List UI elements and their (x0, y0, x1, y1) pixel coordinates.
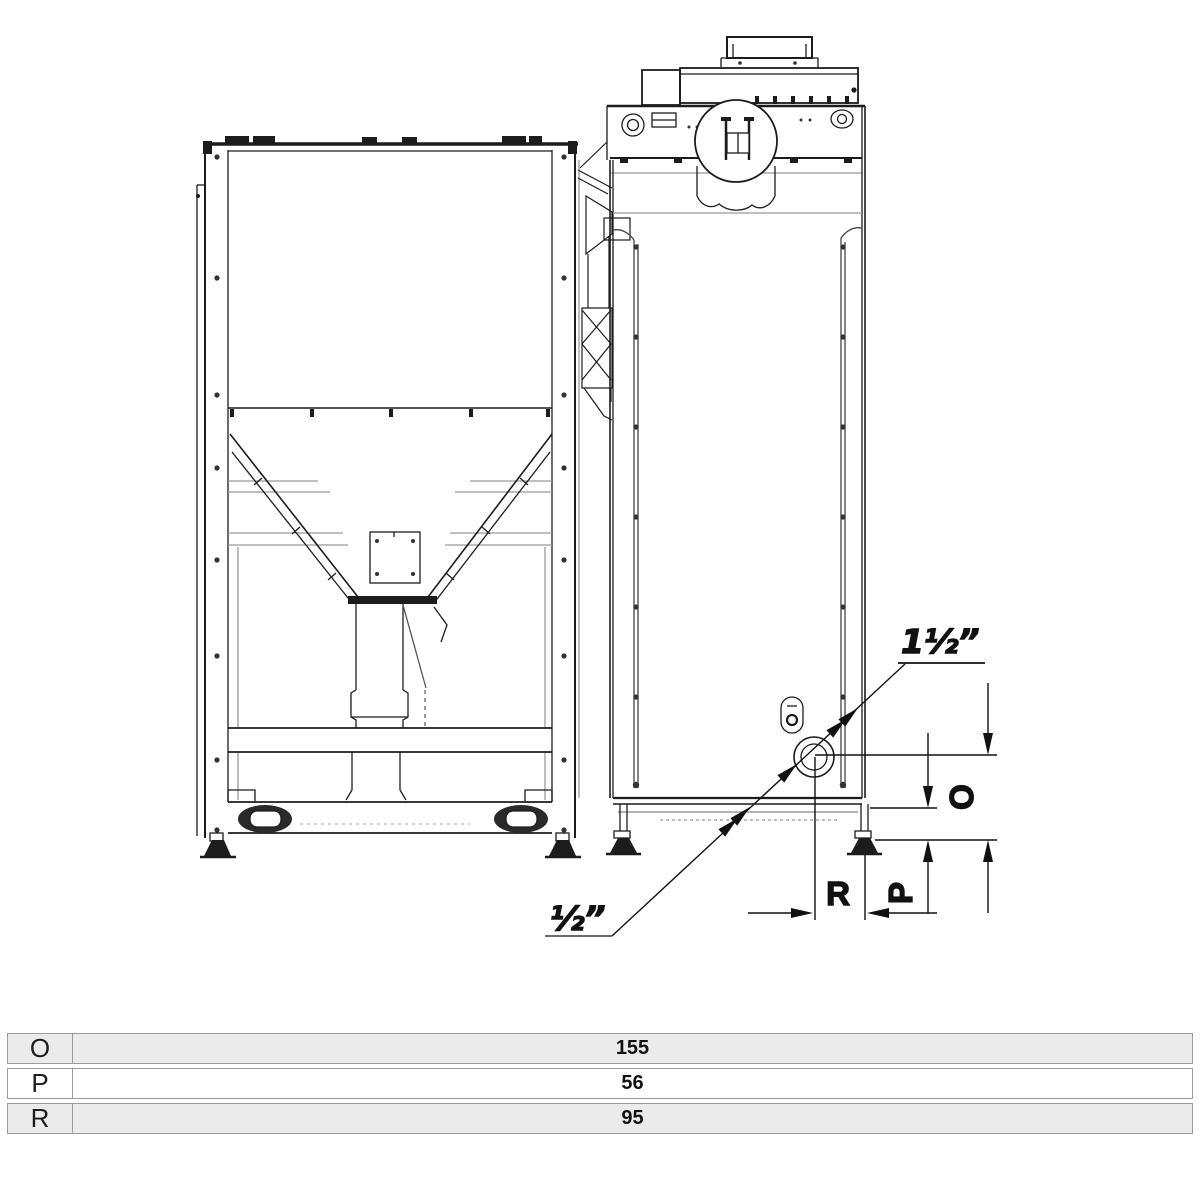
table-row: R 95 (7, 1103, 1193, 1134)
table-row: P 56 (7, 1068, 1193, 1099)
hopper-screws (214, 154, 566, 832)
dim-label-o: O (943, 784, 980, 810)
fitting-label-bottom: ½” (550, 899, 605, 938)
boiler-screws (633, 244, 846, 788)
table-row-label: R (8, 1104, 73, 1133)
dim-P: P (882, 733, 933, 913)
dim-O: O (943, 683, 993, 913)
table-row-label: O (8, 1034, 73, 1063)
hopper-drawing (196, 136, 581, 857)
hopper-base (228, 790, 552, 833)
hopper-beam (228, 728, 552, 752)
boiler-cleanout-cap (695, 100, 777, 210)
fitting-label-top: 1½” (901, 622, 979, 661)
table-row-value: 95 (73, 1104, 1192, 1133)
page: O P R 1½” ½” (0, 0, 1200, 1200)
hopper-access-plate (370, 532, 420, 583)
technical-drawing: O P R 1½” ½” (0, 0, 1200, 1010)
boiler-side-rails (613, 228, 862, 788)
boiler-drawing (606, 37, 882, 854)
dim-label-r: R (826, 875, 850, 912)
table-row: O 155 (7, 1033, 1193, 1064)
table-row-label: P (8, 1069, 73, 1098)
table-row-value: 56 (73, 1069, 1192, 1098)
boiler-return-fitting (794, 737, 834, 777)
boiler-flue (721, 37, 818, 68)
dimension-table: O 155 P 56 R 95 (7, 1033, 1193, 1138)
auger-feeder (578, 142, 630, 420)
hopper-chute (346, 604, 426, 800)
table-row-value: 155 (73, 1034, 1192, 1063)
dim-label-p: P (882, 882, 919, 904)
boiler-drain-fitting (781, 697, 803, 733)
fitting-leaders: 1½” ½” (545, 622, 985, 938)
hopper-feet (200, 833, 581, 857)
